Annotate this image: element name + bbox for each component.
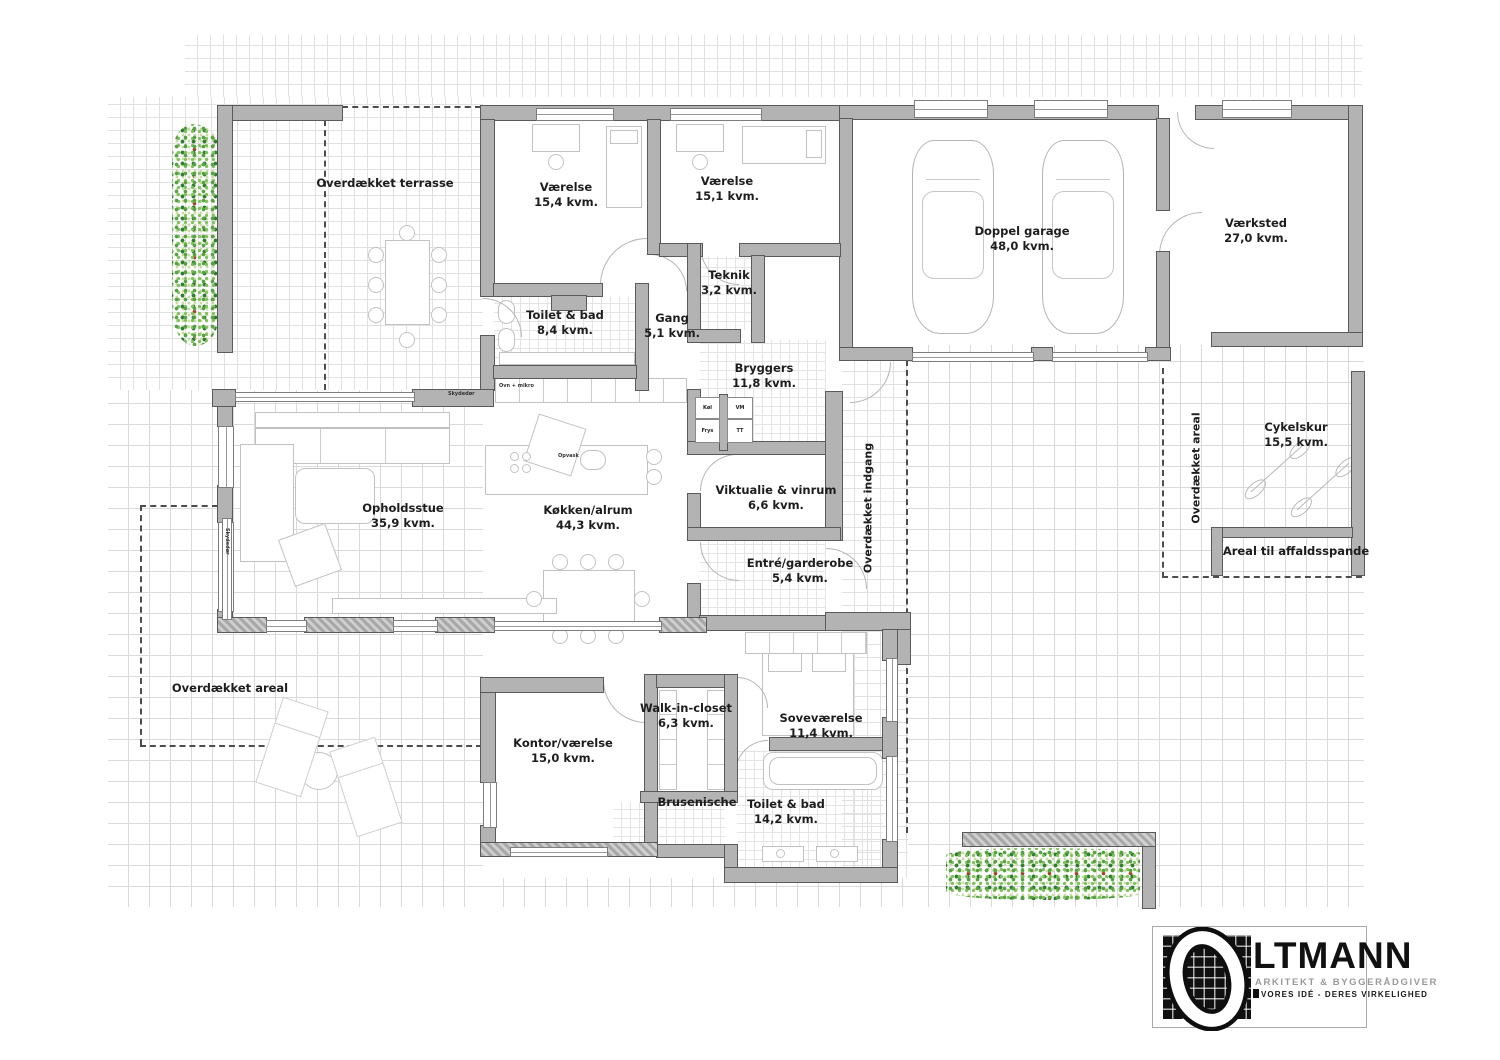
label-overdaekket-terrasse: Overdækket terrasse <box>316 176 453 191</box>
label-sliding-door-left: Skydedør <box>224 528 230 555</box>
wall-hatched <box>305 618 393 632</box>
appliance-box: VM <box>727 397 753 419</box>
wall <box>494 284 602 296</box>
window <box>235 392 415 402</box>
window <box>483 782 497 828</box>
door-swing-arc <box>735 740 768 773</box>
label-vaerksted: Værksted27,0 kvm. <box>1224 216 1288 246</box>
furniture <box>495 378 687 403</box>
company-logo: LTMANN ARKITEKT & BYGGERÅDGIVER VORES ID… <box>1152 926 1367 1028</box>
door-swing-arc <box>650 254 687 291</box>
wall <box>1157 119 1169 210</box>
appliance-box: Køl <box>695 397 720 419</box>
floor-plan: Overdækket terrasse Værelse15,4 kvm. Vær… <box>0 0 1500 1060</box>
label-sovevaerelse: Soveværelse11,4 kvm. <box>779 711 862 741</box>
fixture-icon <box>510 452 519 461</box>
wall <box>1143 846 1155 908</box>
chair-icon <box>646 469 662 485</box>
furniture <box>769 757 877 785</box>
wall <box>688 442 840 454</box>
overhang-dashed-line <box>140 505 218 507</box>
chair-icon <box>368 247 384 263</box>
fixture-icon <box>522 464 531 473</box>
window <box>670 108 762 121</box>
label-walk-in-closet: Walk-in-closet6,3 kvm. <box>640 701 732 731</box>
furniture <box>532 124 580 152</box>
overhang-dashed-line <box>1162 368 1164 578</box>
furniture <box>745 632 867 654</box>
wall <box>883 718 897 758</box>
appliance-box: Frys <box>695 419 720 443</box>
wall <box>700 616 828 630</box>
wall <box>1032 348 1052 360</box>
window <box>886 756 898 842</box>
furniture <box>499 352 635 365</box>
label-bryggers: Bryggers11,8 kvm. <box>732 361 796 391</box>
window <box>914 100 988 118</box>
chair-icon <box>608 554 624 570</box>
wall <box>1349 106 1362 346</box>
door-swing-arc <box>1159 212 1202 255</box>
label-opholdsstue: Opholdsstue35,9 kvm. <box>362 501 443 531</box>
chair-icon <box>368 277 384 293</box>
wall <box>494 366 636 378</box>
window <box>536 108 614 121</box>
chair-icon <box>431 307 447 323</box>
furniture <box>768 652 802 672</box>
chair-icon <box>634 591 650 607</box>
wall <box>1212 528 1222 575</box>
shrub-planting <box>946 848 1140 900</box>
chair-icon <box>692 154 708 170</box>
wall <box>481 336 494 390</box>
logo-tagline: ARKITEKT & BYGGERÅDGIVER <box>1255 977 1438 988</box>
wall <box>648 120 660 254</box>
label-overdaekket-areal-left: Overdækket areal <box>172 681 288 696</box>
label-koekken-alrum: Køkken/alrum44,3 kvm. <box>543 503 632 533</box>
door-swing-arc <box>600 238 647 285</box>
wall <box>1212 528 1352 537</box>
wall <box>481 678 603 692</box>
wall <box>826 392 842 540</box>
wall <box>740 244 840 256</box>
wall <box>725 868 897 882</box>
furniture <box>610 130 638 144</box>
wall <box>883 840 897 870</box>
label-dishwasher: Opvask <box>558 454 579 460</box>
chair-icon <box>526 591 542 607</box>
wall <box>826 613 910 630</box>
furniture <box>255 412 450 428</box>
furniture <box>580 450 606 470</box>
chair-icon <box>552 554 568 570</box>
wall <box>725 675 737 792</box>
overhang-dashed-line <box>324 120 326 390</box>
chair-icon <box>580 554 596 570</box>
fixture-icon <box>776 849 785 858</box>
wall-hatched <box>963 833 1155 846</box>
wall <box>1212 333 1362 346</box>
label-vaerelse-1: Værelse15,4 kvm. <box>534 180 598 210</box>
label-sliding-door-top: Skydedør <box>448 392 475 398</box>
wall <box>213 390 235 406</box>
wall <box>688 528 840 540</box>
chair-icon <box>431 247 447 263</box>
paving-grid-coarse <box>483 878 908 907</box>
window <box>393 620 438 632</box>
appliance-box: TT <box>727 419 753 443</box>
overhang-dashed-line <box>342 106 481 108</box>
window <box>510 847 608 857</box>
furniture <box>812 652 846 672</box>
wall-hatched <box>660 618 706 632</box>
fixture-icon <box>522 452 531 461</box>
wall <box>720 395 727 450</box>
label-vaerelse-2: Værelse15,1 kvm. <box>695 174 759 204</box>
wall <box>896 630 910 664</box>
wall <box>1146 348 1170 360</box>
chair-icon <box>431 277 447 293</box>
wall <box>840 348 912 360</box>
furniture <box>332 598 557 614</box>
window <box>912 352 1034 362</box>
logo-o-icon <box>1147 927 1267 1031</box>
chair-icon <box>646 449 662 465</box>
logo-slogan: VORES IDÉ - DERES VIRKELIGHED <box>1261 990 1428 999</box>
overhang-dashed-line <box>140 505 142 745</box>
shrub-planting <box>172 124 218 346</box>
furniture <box>806 130 822 158</box>
label-entre-garderobe: Entré/garderobe5,4 kvm. <box>747 556 854 586</box>
logo-name: LTMANN <box>1253 935 1412 977</box>
label-overdaekket-areal-right: Overdækket areal <box>1190 412 1203 523</box>
label-areal-til-affaldsspande: Areal til affaldsspande <box>1223 544 1369 559</box>
label-gang: Gang5,1 kvm. <box>644 311 700 341</box>
wall-hatched <box>218 618 266 632</box>
window <box>266 620 307 632</box>
window <box>1052 352 1148 362</box>
wall <box>218 486 232 522</box>
chair-icon <box>548 154 564 170</box>
label-kontor-vaerelse: Kontor/værelse15,0 kvm. <box>513 736 613 766</box>
wall <box>840 119 852 348</box>
wall <box>1157 252 1169 360</box>
label-viktualie-vinrum: Viktualie & vinrum6,6 kvm. <box>716 483 837 513</box>
chair-icon <box>368 307 384 323</box>
window <box>1222 100 1292 118</box>
overhang-dashed-line <box>906 360 908 833</box>
wall <box>481 120 494 296</box>
furniture <box>385 240 430 325</box>
wall <box>840 106 1158 119</box>
fixture-icon <box>830 849 839 858</box>
wall <box>481 678 495 782</box>
window <box>494 621 662 631</box>
label-cykelskur: Cykelskur15,5 kvm. <box>1264 420 1328 450</box>
wall <box>688 584 700 618</box>
overhang-dashed-line <box>1162 576 1362 578</box>
label-toilet-bad-1: Toilet & bad8,4 kvm. <box>526 308 604 338</box>
wall <box>481 106 840 120</box>
label-doppel-garage: Doppel garage48,0 kvm. <box>974 224 1069 254</box>
window <box>1034 100 1108 118</box>
logo-o-grid-icon <box>1163 935 1251 1019</box>
chair-icon <box>399 225 415 241</box>
label-brusenische: Brusenische <box>657 795 736 810</box>
label-oven-cabinet: Ovn + mikro <box>499 384 534 390</box>
window <box>886 658 898 722</box>
wall <box>883 630 897 660</box>
wall <box>218 106 342 120</box>
furniture <box>676 124 724 152</box>
wall <box>218 106 232 352</box>
window <box>218 426 234 488</box>
fixture-icon <box>510 464 519 473</box>
paving-grid-coarse <box>108 390 483 907</box>
label-toilet-bad-2: Toilet & bad14,2 kvm. <box>747 797 825 827</box>
label-teknik: Teknik3,2 kvm. <box>701 268 757 298</box>
label-overdaekket-indgang: Overdækket indgang <box>862 443 875 573</box>
wall-hatched <box>436 618 494 632</box>
paving-grid-fine <box>185 35 1362 97</box>
chair-icon <box>399 332 415 348</box>
